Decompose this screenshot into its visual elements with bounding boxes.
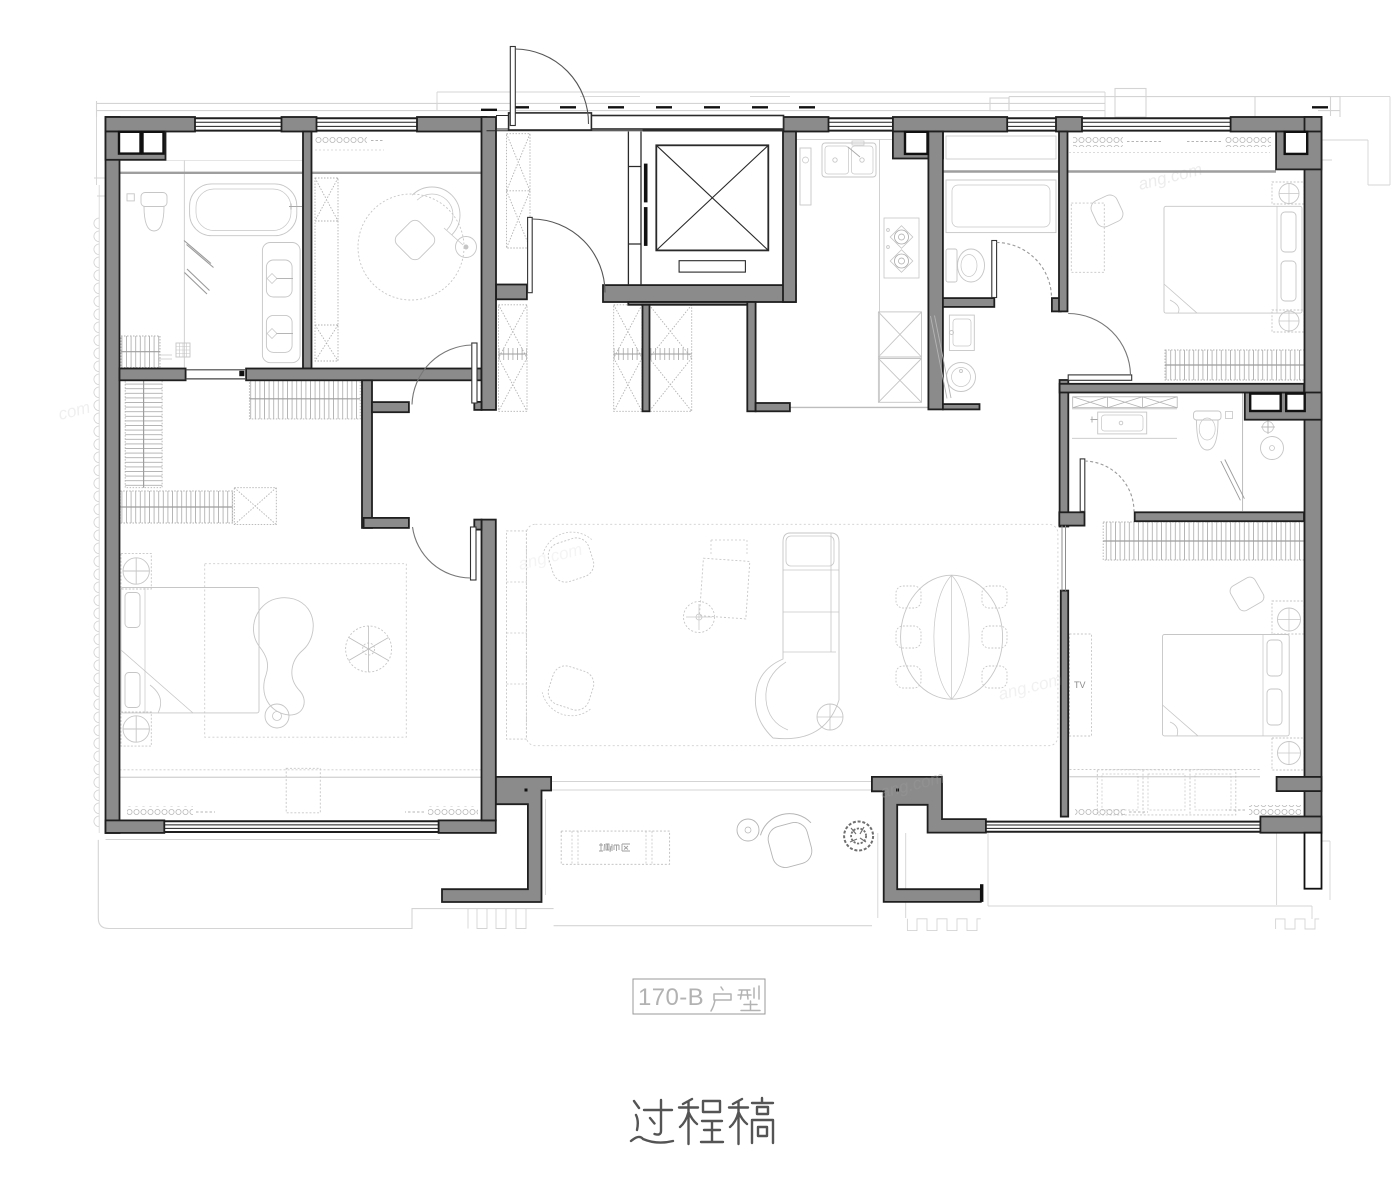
svg-text:TV: TV bbox=[1074, 680, 1086, 690]
svg-text:170-B: 170-B bbox=[638, 984, 704, 1011]
